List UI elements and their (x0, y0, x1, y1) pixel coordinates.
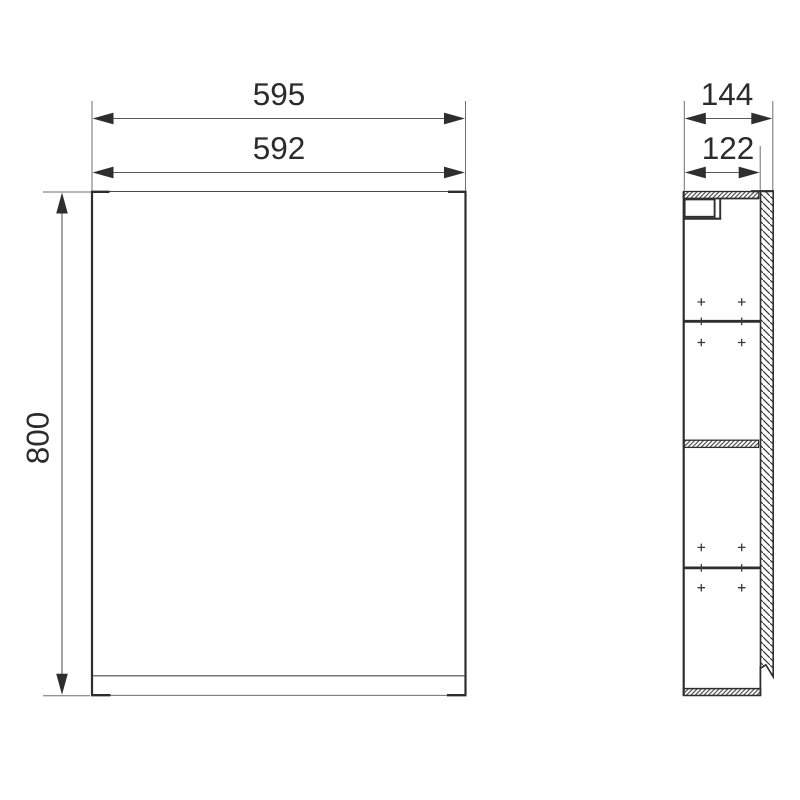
svg-text:595: 595 (253, 76, 306, 112)
svg-text:800: 800 (20, 412, 56, 465)
svg-text:122: 122 (702, 130, 755, 166)
svg-text:592: 592 (253, 130, 306, 166)
svg-text:144: 144 (701, 76, 754, 112)
